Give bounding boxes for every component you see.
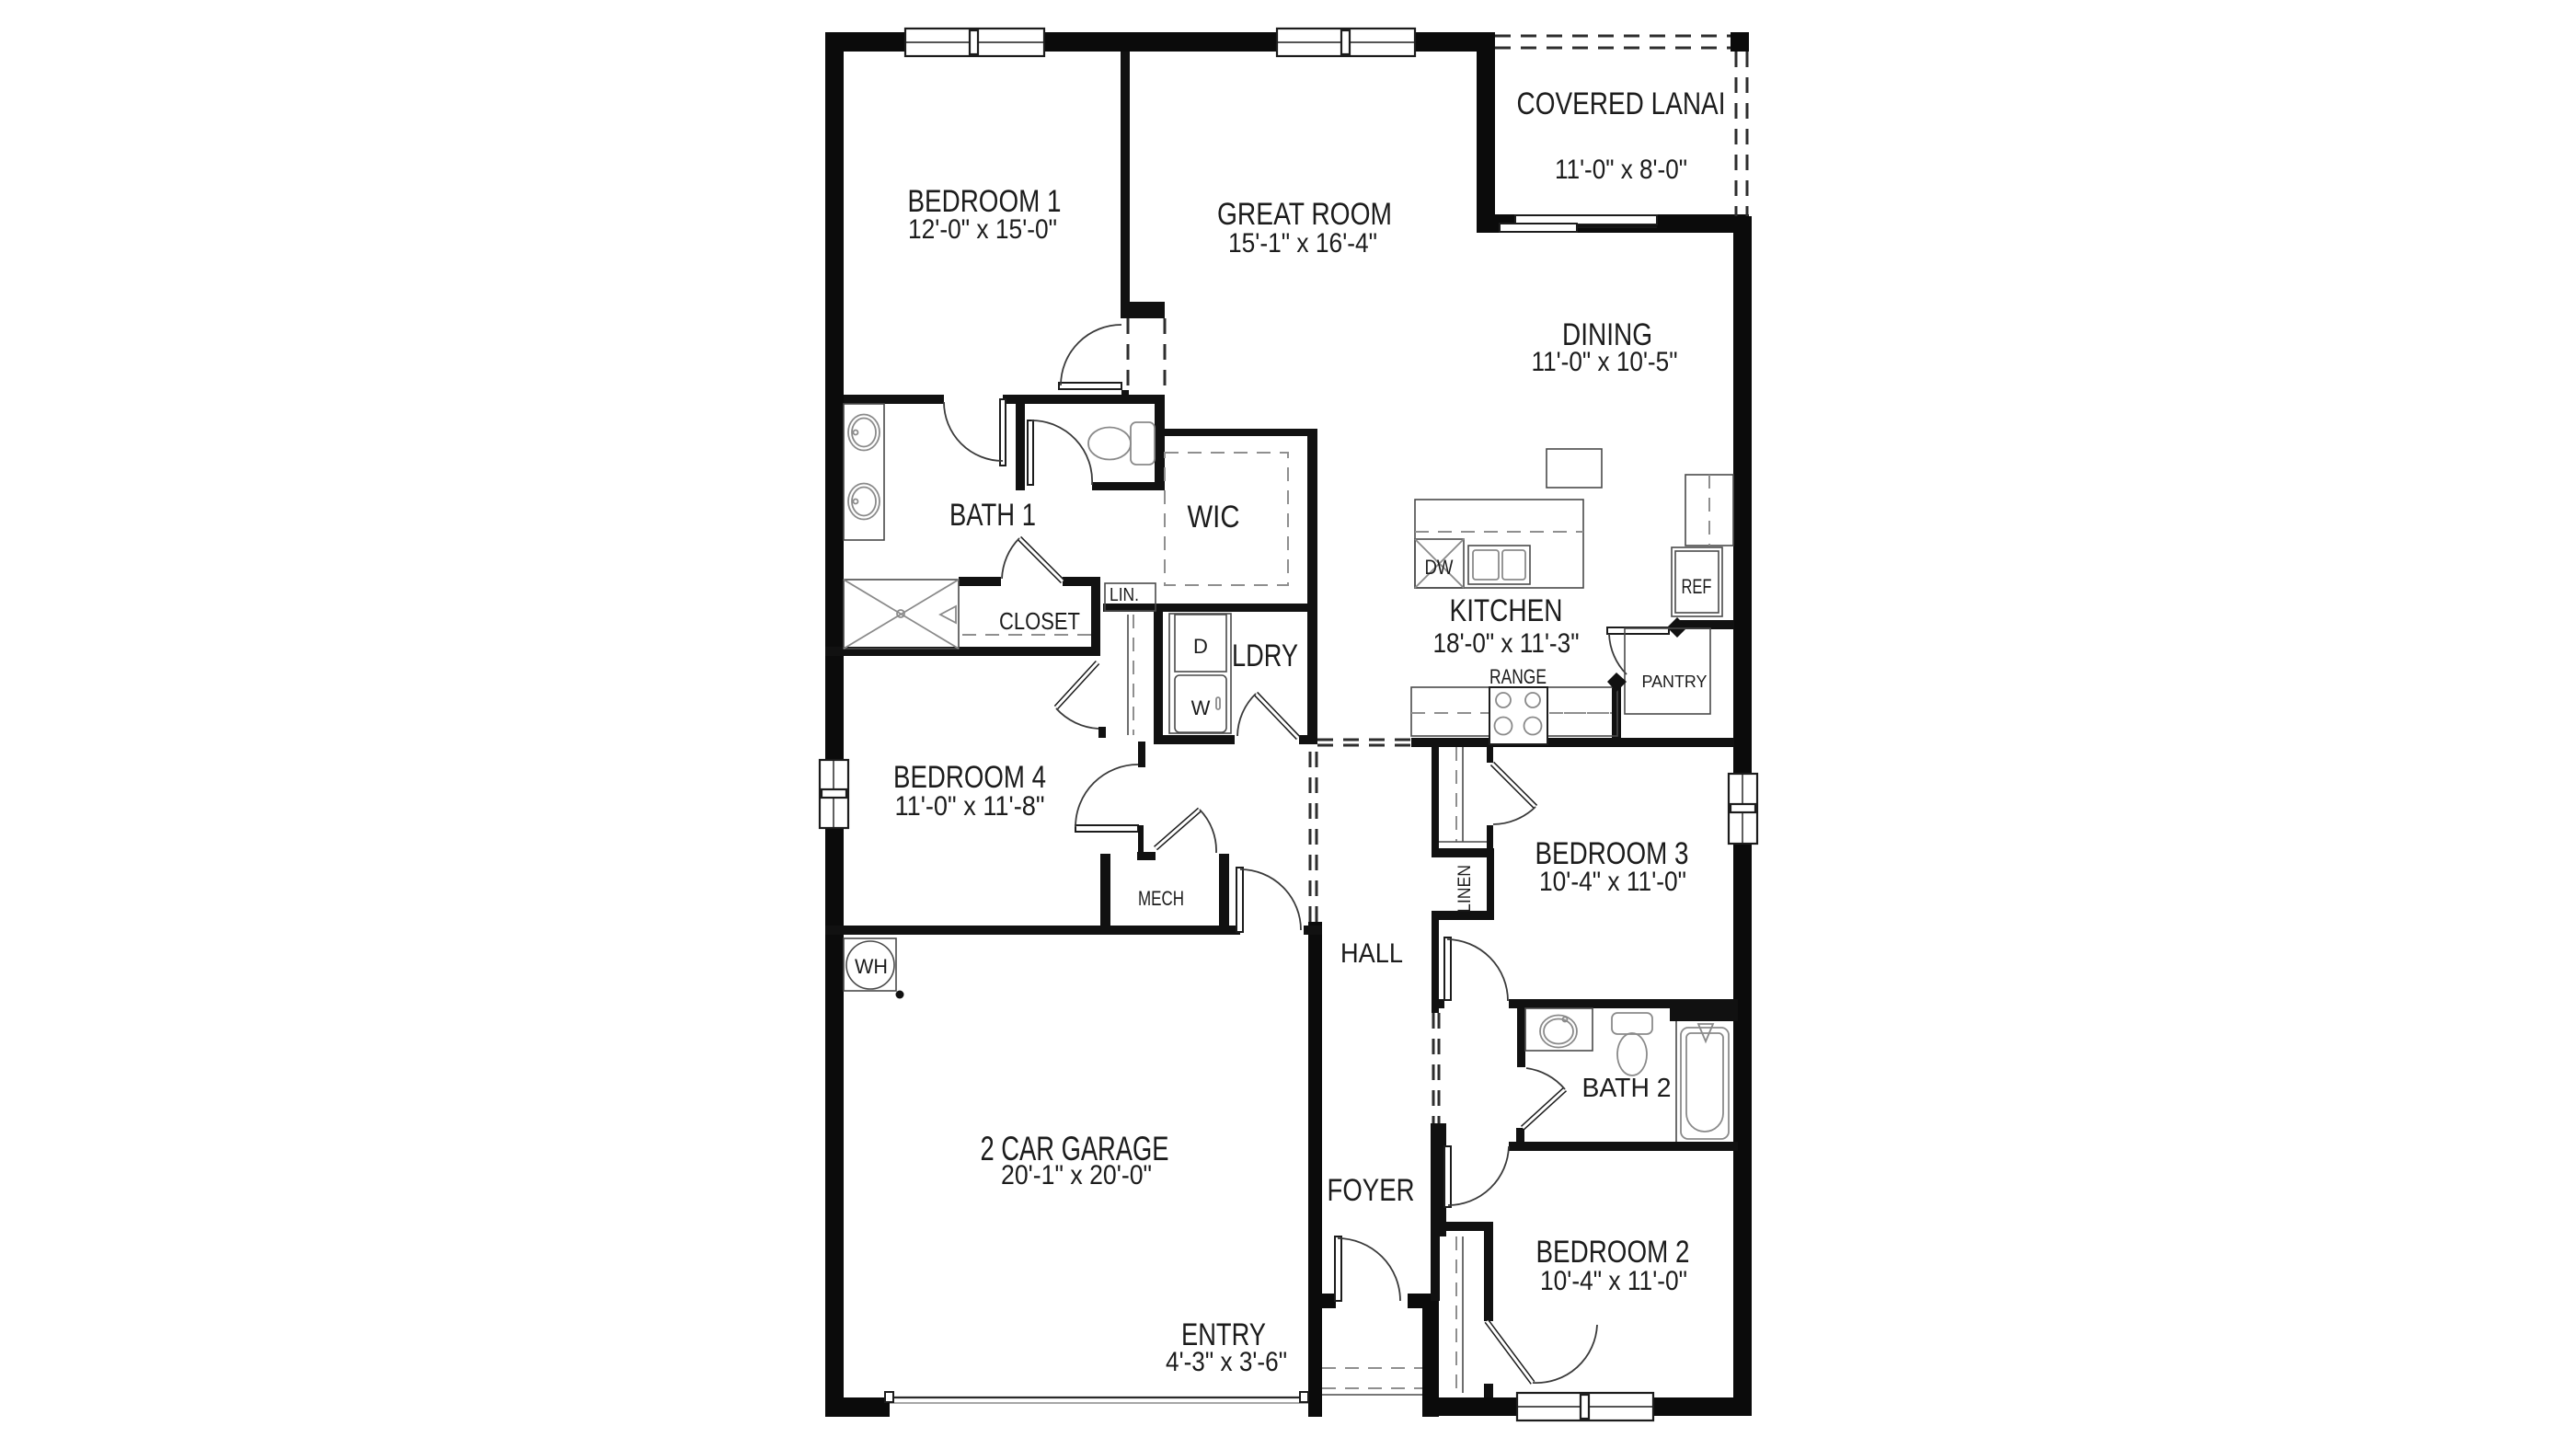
svg-text:10'-4" x 11'-0": 10'-4" x 11'-0" <box>1539 867 1686 897</box>
svg-text:FOYER: FOYER <box>1328 1173 1415 1208</box>
svg-text:CLOSET: CLOSET <box>999 607 1080 635</box>
svg-text:15'-1" x 16'-4": 15'-1" x 16'-4" <box>1228 228 1377 259</box>
svg-text:LDRY: LDRY <box>1232 638 1298 673</box>
svg-text:D: D <box>1193 635 1208 658</box>
svg-text:PANTRY: PANTRY <box>1642 673 1708 691</box>
svg-text:20'-1" x 20'-0": 20'-1" x 20'-0" <box>1001 1160 1152 1190</box>
svg-text:WH: WH <box>855 955 888 978</box>
svg-text:GREAT ROOM: GREAT ROOM <box>1217 197 1392 232</box>
svg-text:BATH 2: BATH 2 <box>1582 1074 1672 1103</box>
svg-text:11'-0" x 8'-0": 11'-0" x 8'-0" <box>1555 155 1687 185</box>
svg-text:REF: REF <box>1682 575 1712 598</box>
svg-text:10'-4" x 11'-0": 10'-4" x 11'-0" <box>1540 1266 1687 1296</box>
svg-text:RANGE: RANGE <box>1489 665 1547 688</box>
svg-text:4'-3" x 3'-6": 4'-3" x 3'-6" <box>1166 1347 1287 1377</box>
svg-text:DW: DW <box>1425 556 1454 579</box>
svg-text:W: W <box>1191 696 1211 719</box>
svg-text:LINEN: LINEN <box>1455 865 1475 913</box>
svg-text:11'-0" x 10'-5": 11'-0" x 10'-5" <box>1532 347 1678 377</box>
svg-text:KITCHEN: KITCHEN <box>1450 593 1563 628</box>
svg-text:BATH 1: BATH 1 <box>949 498 1036 533</box>
svg-text:HALL: HALL <box>1340 938 1403 969</box>
svg-text:BEDROOM 4: BEDROOM 4 <box>893 760 1046 795</box>
svg-text:WIC: WIC <box>1188 500 1240 535</box>
svg-text:LIN.: LIN. <box>1110 585 1139 605</box>
svg-text:BEDROOM 2: BEDROOM 2 <box>1536 1235 1690 1270</box>
svg-text:12'-0" x 15'-0": 12'-0" x 15'-0" <box>908 214 1057 245</box>
svg-text:18'-0" x 11'-3": 18'-0" x 11'-3" <box>1433 628 1580 659</box>
svg-text:MECH: MECH <box>1138 887 1184 910</box>
svg-text:COVERED LANAI: COVERED LANAI <box>1517 86 1726 121</box>
svg-text:11'-0" x 11'-8": 11'-0" x 11'-8" <box>895 791 1045 822</box>
